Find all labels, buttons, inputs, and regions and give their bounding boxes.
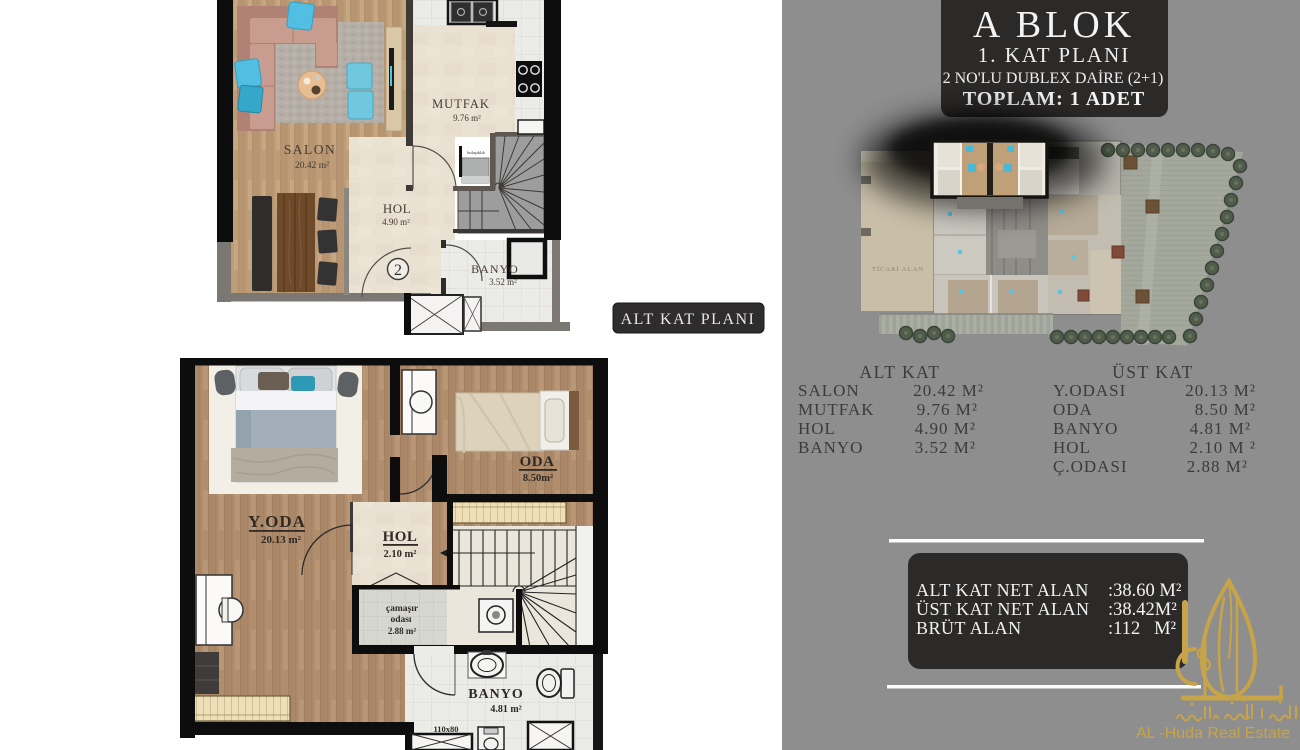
svg-text:bulaşıklık: bulaşıklık: [467, 150, 485, 155]
svg-text:2.88 M²: 2.88 M²: [1187, 457, 1248, 476]
svg-text:9.76 M²: 9.76 M²: [917, 400, 978, 419]
svg-text:BRÜT ALAN: BRÜT ALAN: [916, 618, 1022, 638]
svg-text:A BLOK: A BLOK: [973, 4, 1135, 46]
svg-text:2.88 m²: 2.88 m²: [388, 626, 416, 636]
svg-text:20.42 m²: 20.42 m²: [295, 161, 329, 171]
svg-text:2: 2: [394, 262, 402, 279]
svg-text:çamaşır: çamaşır: [386, 604, 419, 614]
svg-text:odası: odası: [390, 615, 411, 625]
svg-text::38.60 M²: :38.60 M²: [1108, 581, 1182, 601]
svg-text:2 NO'LU DUBLEX DAİRE (2+1): 2 NO'LU DUBLEX DAİRE (2+1): [943, 69, 1164, 87]
svg-text:3.52 M²: 3.52 M²: [915, 438, 976, 457]
svg-text:Ç.ODASI: Ç.ODASI: [1053, 457, 1128, 476]
svg-text:ODA: ODA: [520, 454, 555, 470]
svg-text:BANYO: BANYO: [1053, 419, 1118, 438]
svg-text:BANYO: BANYO: [798, 438, 863, 457]
svg-text:2.10 M ²: 2.10 M ²: [1190, 438, 1256, 457]
svg-text:MUTFAK: MUTFAK: [798, 400, 875, 419]
svg-text:TOPLAM: 1 ADET: TOPLAM: 1 ADET: [963, 88, 1146, 110]
svg-text:20.42 M²: 20.42 M²: [913, 381, 984, 400]
svg-text:AL -Huda Real Estate: AL -Huda Real Estate: [1136, 725, 1290, 742]
svg-text:1. KAT PLANI: 1. KAT PLANI: [978, 43, 1131, 67]
svg-text:HOL: HOL: [1053, 438, 1091, 457]
svg-text:ALT KAT NET ALAN: ALT KAT NET ALAN: [916, 580, 1089, 600]
svg-text:4.81 M²: 4.81 M²: [1190, 419, 1251, 438]
svg-text:BANYO: BANYO: [468, 687, 524, 702]
svg-text:TİCARİ ALAN: TİCARİ ALAN: [872, 266, 924, 273]
svg-text:8.50m²: 8.50m²: [523, 473, 553, 484]
svg-text:3.52 m²: 3.52 m²: [489, 277, 517, 287]
svg-text::38.42M²: :38.42M²: [1108, 600, 1177, 620]
svg-text:20.13 m²: 20.13 m²: [261, 534, 302, 546]
svg-text:8.50 M²: 8.50 M²: [1195, 400, 1256, 419]
svg-text:4.90 M²: 4.90 M²: [915, 419, 976, 438]
svg-text:HOL: HOL: [798, 419, 836, 438]
svg-text:ALT KAT: ALT KAT: [860, 362, 941, 382]
svg-text:9.76 m²: 9.76 m²: [453, 113, 481, 123]
svg-text:ALT KAT PLANI: ALT KAT PLANI: [621, 311, 756, 328]
svg-text:MUTFAK: MUTFAK: [432, 97, 490, 111]
svg-text:SALON: SALON: [798, 381, 860, 400]
svg-text:ÜST KAT NET ALAN: ÜST KAT NET ALAN: [916, 599, 1090, 619]
svg-text:ODA: ODA: [1053, 400, 1093, 419]
svg-text:BANYO: BANYO: [471, 262, 519, 276]
svg-text:SALON: SALON: [284, 142, 337, 157]
svg-text:Y.ODASI: Y.ODASI: [1053, 381, 1126, 400]
svg-text:4.81 m²: 4.81 m²: [490, 704, 521, 715]
svg-text:4.90 m²: 4.90 m²: [382, 217, 410, 227]
svg-text:110x80: 110x80: [433, 724, 458, 734]
svg-text:20.13 M²: 20.13 M²: [1185, 381, 1256, 400]
svg-text:HOL: HOL: [383, 529, 418, 545]
svg-text::112 M²: :112 M²: [1108, 619, 1177, 639]
svg-text:HOL: HOL: [383, 201, 411, 216]
svg-text:ÜST KAT: ÜST KAT: [1112, 362, 1194, 382]
svg-text:Y.ODA: Y.ODA: [248, 512, 306, 531]
svg-text:2.10 m²: 2.10 m²: [384, 549, 417, 560]
